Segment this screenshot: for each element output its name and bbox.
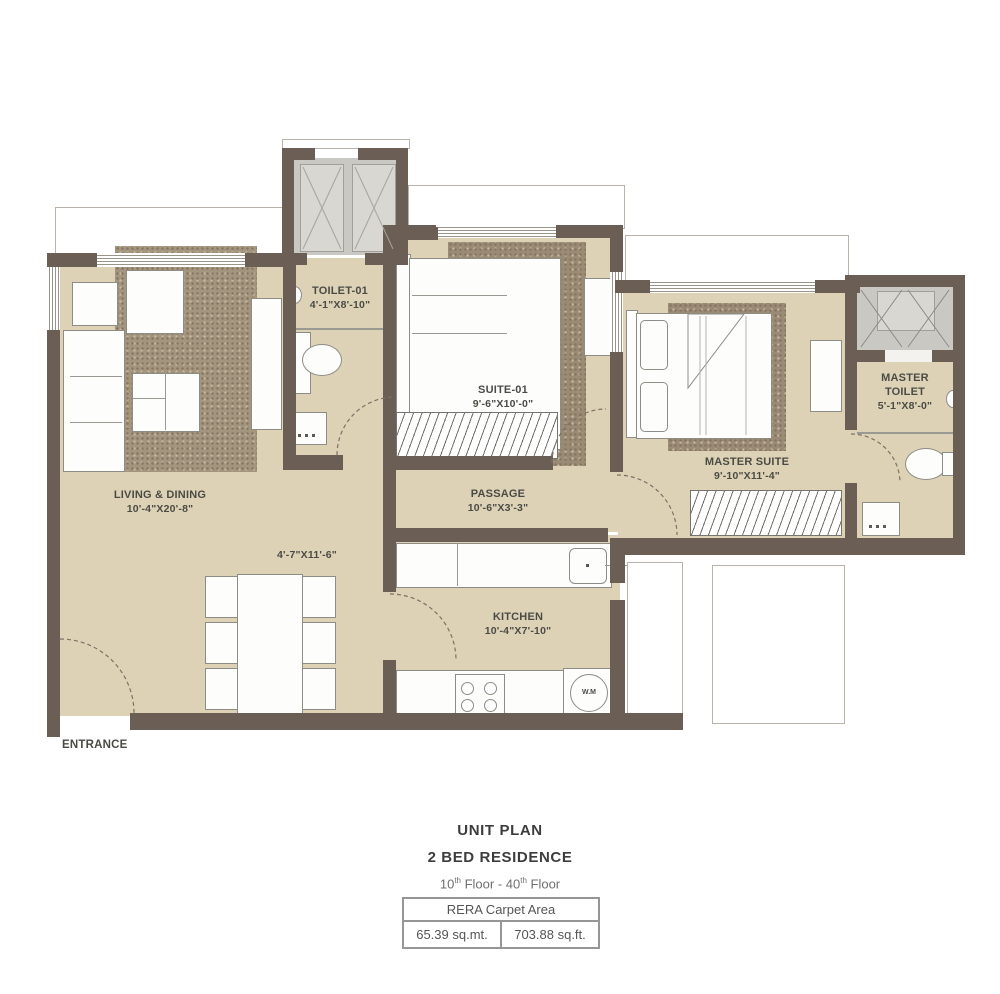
floor-plan-sheet: W.M — [0, 0, 1000, 994]
wall — [953, 275, 965, 545]
wall — [615, 280, 650, 293]
living-dining-label: LIVING & DINING 10'-4"X20'-8" — [85, 488, 235, 516]
dining-chair — [301, 576, 336, 618]
master-wardrobe — [690, 490, 842, 536]
armchair — [126, 270, 184, 334]
service-ledge — [627, 562, 683, 724]
rera-table-header: RERA Carpet Area — [404, 899, 598, 922]
duct-shaft-inner — [877, 291, 935, 331]
balcony-suite — [408, 185, 625, 229]
wall — [408, 227, 438, 240]
window — [47, 267, 60, 330]
window — [97, 253, 245, 267]
room-dims: 9'-10"X11'-4" — [672, 469, 822, 483]
washing-machine: W.M — [563, 668, 615, 718]
wall — [282, 148, 294, 265]
dining-chair — [205, 622, 240, 664]
wall — [283, 455, 343, 470]
dining-chair — [205, 576, 240, 618]
toilet01-label: TOILET-01 4'-1"X8'-10" — [294, 284, 386, 312]
floor-superscript: th — [454, 876, 461, 885]
wall — [932, 350, 965, 362]
counter-line — [457, 543, 458, 586]
sofa-line — [70, 376, 122, 377]
bed-line — [412, 295, 507, 296]
washing-machine-label: W.M — [582, 689, 596, 696]
master-side-table — [810, 340, 842, 412]
wall — [615, 538, 965, 555]
washbasin — [292, 412, 327, 445]
floor-plan: W.M — [0, 0, 1000, 760]
kitchen-label: KITCHEN 10'-4"X7'-10" — [443, 610, 593, 638]
wall — [282, 253, 307, 265]
washbasin — [862, 502, 900, 536]
dining-dims-label: 4'-7"X11'-6" — [247, 548, 367, 562]
entrance-label: ENTRANCE — [62, 738, 152, 752]
coffee-table-line — [132, 398, 165, 399]
floor-range: 10th Floor - 40th Floor — [0, 876, 1000, 891]
balcony-master — [625, 235, 849, 282]
room-name: KITCHEN — [443, 610, 593, 624]
window — [650, 280, 815, 293]
floor-superscript: th — [520, 876, 527, 885]
shaft-door-gap — [885, 350, 932, 362]
sofa-line — [70, 422, 122, 423]
room-name: MASTER SUITE — [672, 455, 822, 469]
coffee-table — [132, 373, 200, 432]
suite01-cabinet — [584, 278, 612, 356]
dining-chair — [301, 668, 336, 710]
room-name: MASTER TOILET — [865, 371, 945, 399]
sink-dot — [586, 564, 589, 567]
burner-icon — [484, 699, 497, 712]
hob — [455, 674, 505, 716]
service-ledge — [712, 565, 845, 724]
wall — [845, 350, 885, 362]
master-toilet-label: MASTER TOILET 5'-1"X8'-0" — [865, 371, 945, 413]
wall — [845, 275, 965, 287]
room-name: SUITE-01 — [428, 383, 578, 397]
master-suite-label: MASTER SUITE 9'-10"X11'-4" — [672, 455, 822, 483]
pillow — [640, 382, 668, 432]
wall — [383, 528, 608, 542]
wall — [47, 253, 97, 267]
dining-chair — [301, 622, 336, 664]
bed-line — [412, 333, 507, 334]
dining-table — [237, 574, 303, 716]
window — [436, 225, 556, 238]
wall — [130, 713, 683, 730]
wall — [610, 600, 625, 730]
wall — [845, 483, 857, 545]
wc-fixture — [905, 448, 947, 480]
rera-carpet-area-table: RERA Carpet Area 65.39 sq.mt. 703.88 sq.… — [402, 897, 600, 949]
wall — [282, 148, 315, 160]
unit-plan-title: UNIT PLAN — [0, 822, 1000, 839]
partition-line — [296, 328, 383, 330]
room-dims: 9'-6"X10'-0" — [428, 397, 578, 411]
burner-icon — [461, 699, 474, 712]
coffee-table-line — [165, 373, 166, 430]
sofa — [63, 330, 125, 472]
dining-chair — [205, 668, 240, 710]
burner-icon — [461, 682, 474, 695]
suite01-label: SUITE-01 9'-6"X10'-0" — [428, 383, 578, 411]
room-dims: 10'-4"X20'-8" — [85, 502, 235, 516]
pillow — [640, 320, 668, 370]
wall — [383, 456, 396, 592]
tv-unit — [251, 298, 282, 430]
rera-sqft-cell: 703.88 sq.ft. — [500, 922, 598, 947]
room-dims: 4'-7"X11'-6" — [247, 548, 367, 562]
lift-door-panel — [300, 164, 344, 252]
wall — [47, 330, 60, 737]
wall — [383, 456, 553, 470]
partition-line — [857, 432, 953, 434]
wall — [610, 352, 623, 472]
room-name: PASSAGE — [423, 487, 573, 501]
room-name: LIVING & DINING — [85, 488, 235, 502]
armchair — [72, 282, 118, 326]
wc-fixture — [302, 344, 342, 376]
suite01-wardrobe — [396, 412, 558, 459]
wall — [358, 148, 408, 160]
wall — [610, 225, 623, 272]
unit-plan-subtitle: 2 BED RESIDENCE — [0, 849, 1000, 866]
room-name: TOILET-01 — [294, 284, 386, 298]
passage-label: PASSAGE 10'-6"X3'-3" — [423, 487, 573, 515]
room-dims: 5'-1"X8'-0" — [865, 399, 945, 413]
wall — [365, 253, 408, 265]
wall — [396, 148, 408, 265]
washing-machine-drum: W.M — [570, 674, 608, 712]
room-dims: 10'-6"X3'-3" — [423, 501, 573, 515]
basin-dots — [298, 434, 301, 437]
rera-sqmt-cell: 65.39 sq.mt. — [404, 922, 500, 947]
basin-dots — [869, 525, 872, 528]
room-dims: 10'-4"X7'-10" — [443, 624, 593, 638]
burner-icon — [484, 682, 497, 695]
room-dims: 4'-1"X8'-10" — [294, 298, 386, 312]
